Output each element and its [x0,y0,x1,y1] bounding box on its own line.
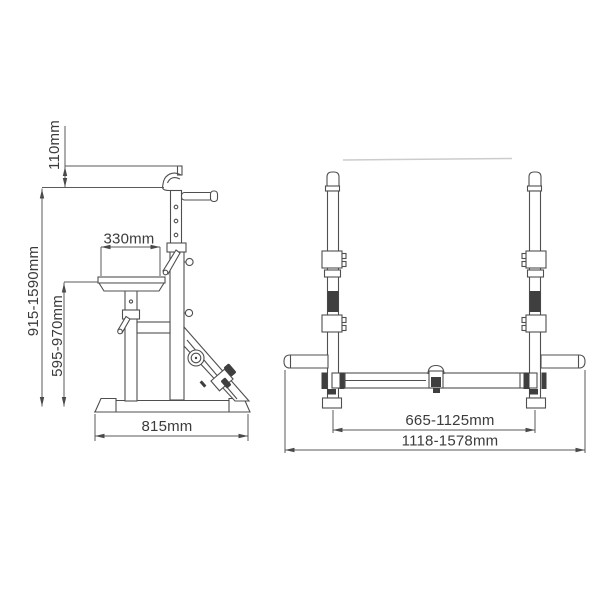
seat-platform-top [98,277,165,283]
upper-post [171,191,182,252]
front-base-foot [95,399,116,413]
link-bar [137,322,170,333]
main-upright [163,191,193,401]
seat-platform-flange [99,283,164,291]
dim-label-1118-1578mm: 1118-1578mm [402,433,499,450]
seat-assembly [98,277,165,401]
front-view: 665-1125mm 1118-1578mm [284,159,585,454]
handle-end-cap [211,191,218,202]
dimension-drawing: 110mm 915-1590mm 595-970mm 330mm [0,0,600,600]
barbell-rest-cap [327,172,339,186]
hook-bracket [322,315,342,332]
dim-label-815mm: 815mm [141,418,192,435]
crossbar-assembly [322,366,547,395]
adjust-slot [530,291,541,312]
clamp-bolt [433,388,440,393]
j-hook [163,173,182,190]
dim-post-top-offset: 110mm [42,120,180,187]
adjust-slot [328,291,339,312]
lock-knob [186,258,193,265]
lower-post [170,250,184,400]
hook-bracket [526,251,546,268]
dim-seat-height-range: 595-970mm [49,282,98,407]
faint-guide-line [343,159,512,161]
foot-pad [323,398,342,408]
hook-bracket [322,251,342,268]
center-clamp [428,366,444,394]
seat-post [125,290,137,401]
dim-rack-height-range: 915-1590mm [25,189,44,407]
side-view: 110mm 915-1590mm 595-970mm 330mm [25,120,250,441]
dim-label-915-1590mm: 915-1590mm [25,246,42,336]
dim-label-110mm: 110mm [46,120,63,170]
dim-label-330mm: 330mm [103,231,154,248]
foot-pad [527,398,546,408]
handle-peg [182,193,213,201]
dim-inner-width-range: 665-1125mm [333,410,535,433]
dim-label-665-1125mm: 665-1125mm [405,412,494,429]
dim-seat-length: 330mm [101,231,160,277]
dim-label-595-970mm: 595-970mm [49,295,66,377]
hook-bracket [526,315,546,332]
rack-drawing-svg: 110mm 915-1590mm 595-970mm 330mm [0,0,600,600]
dim-base-length: 815mm [95,414,248,441]
brace-assembly [137,322,249,401]
barbell-rest-cap [529,172,541,186]
lock-knob [185,309,192,316]
